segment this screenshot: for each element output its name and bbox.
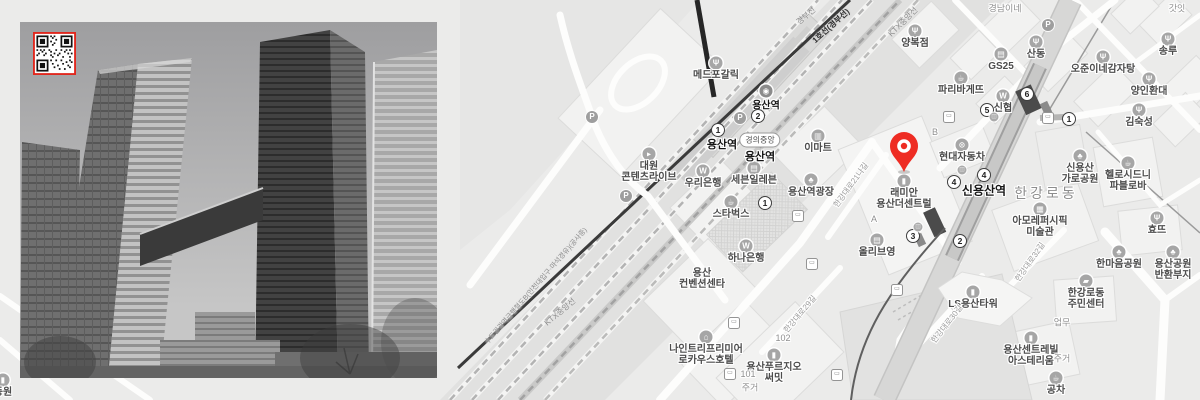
park-icon: ♣: [1167, 246, 1180, 259]
subway-exit-badge[interactable]: 2: [751, 109, 765, 123]
bank-icon: W: [697, 165, 710, 178]
store-icon: ▤: [995, 48, 1008, 61]
map-poi-label: 송루: [1159, 46, 1177, 57]
hotel-icon: ⌂: [700, 331, 713, 344]
map-poi-label-line: 공차: [1047, 385, 1065, 396]
car-icon: ⊙: [956, 139, 969, 152]
map-poi-label: 양인환대: [1131, 86, 1168, 97]
parking-icon: P: [734, 112, 746, 124]
map-poi-label: 산동: [1027, 49, 1045, 60]
map-poi-label: 용산컨벤션센타: [679, 268, 725, 290]
park-icon: ♣: [805, 174, 818, 187]
bank-icon: W: [997, 90, 1010, 103]
map-poi-label-line: 동원: [0, 387, 12, 398]
elevator-icon: ◫: [914, 223, 923, 232]
bus-stop-icon: ▭: [728, 317, 740, 329]
map-poi-label: 파리바게뜨: [938, 85, 984, 96]
map-poi-label: 효뜨: [1148, 225, 1166, 236]
restaurant-icon: Ψ: [1151, 212, 1164, 225]
station-name-label[interactable]: 신용산역: [962, 182, 1006, 199]
map-poi-label-line: 올리브영: [859, 247, 896, 258]
area-label: 갓잇: [1169, 2, 1186, 15]
area-label: 업무: [1054, 316, 1071, 329]
map-poi-label-line: 미술관: [1012, 227, 1067, 238]
map-poi-label: 신용산가로공원: [1062, 163, 1099, 185]
map-poi-label: 한마음공원: [1096, 259, 1142, 270]
subway-exit-badge[interactable]: 1: [1062, 112, 1076, 126]
station-name-label[interactable]: 용산역: [745, 148, 775, 164]
map-poi-label: 한강로동주민센터: [1068, 288, 1105, 310]
district-label: 한강로동: [1014, 183, 1078, 203]
map-poi-label: 대원콘텐츠라이브: [621, 161, 676, 183]
map-poi-label: 올리브영: [859, 247, 896, 258]
cafe-icon: ☕: [725, 196, 738, 209]
map-poi-label-line: 양복점: [901, 38, 929, 49]
map-poi-label: 현대자동차: [939, 152, 985, 163]
area-label: B: [932, 127, 938, 137]
subway-exit-badge[interactable]: 1: [711, 123, 725, 137]
map-poi-label-line: 한마음공원: [1096, 259, 1142, 270]
area-label: 경남이네: [988, 2, 1021, 15]
map-poi-label: 용산센트레빌아스테리움: [1003, 345, 1058, 367]
restaurant-icon: Ψ: [909, 25, 922, 38]
map-poi-label-line: 메드포갈릭: [693, 70, 739, 81]
subway-exit-badge[interactable]: 1: [758, 196, 772, 210]
parking-icon: P: [620, 190, 632, 202]
map-poi-label: 양복점: [901, 38, 929, 49]
map-poi-label-line: 아스테리움: [1003, 356, 1058, 367]
map-poi-label-line: 용산: [679, 268, 725, 279]
media-icon: ▸: [643, 148, 656, 161]
map-poi-label: 오준이네감자탕: [1071, 64, 1135, 75]
bus-stop-icon: ▭: [792, 210, 804, 222]
building-icon: ▮: [0, 374, 10, 387]
map-poi-label-line: 용산공원: [1155, 259, 1192, 270]
park-icon: ♣: [1113, 246, 1126, 259]
area-label: 101: [740, 369, 755, 379]
map-poi-label-line: 래미안: [876, 188, 931, 199]
restaurant-icon: Ψ: [1143, 73, 1156, 86]
apartment-icon: ▮: [768, 349, 781, 362]
store-icon: ▤: [871, 234, 884, 247]
map-poi-label: 우리은행: [685, 178, 722, 189]
map-pin[interactable]: [886, 126, 922, 176]
rail-line-label: 경부선: [794, 5, 818, 28]
map-poi-label-line: 한강로동: [1068, 288, 1105, 299]
map-poi-label-line: 현대자동차: [939, 152, 985, 163]
map-poi-label-line: 반환부지: [1155, 270, 1192, 281]
restaurant-icon: Ψ: [1097, 51, 1110, 64]
map-poi-label-line: 오준이네감자탕: [1071, 64, 1135, 75]
map-poi-label-line: 용산역광장: [788, 187, 834, 198]
map-poi-label: 동원: [0, 387, 12, 398]
gov-icon: ▰: [1080, 275, 1093, 288]
line-badge-gyeongui-jungang: 경의중앙: [739, 133, 780, 148]
map-poi-label-line: 로카우스호텔: [669, 355, 743, 366]
bank-icon: W: [740, 240, 753, 253]
bus-stop-icon: ▭: [943, 111, 955, 123]
subway-exit-badge[interactable]: 4: [947, 175, 961, 189]
map-poi-label-line: 용산센트레빌: [1003, 345, 1058, 356]
map-poi-label-line: 파리바게뜨: [938, 85, 984, 96]
map-poi-label-line: 하나은행: [728, 253, 765, 264]
building-icon: ▮: [967, 286, 980, 299]
subway-exit-badge[interactable]: 2: [953, 234, 967, 248]
map-poi-label-line: 용산더센트럴: [876, 199, 931, 210]
parking-icon: P: [1042, 19, 1054, 31]
restaurant-icon: Ψ: [1162, 33, 1175, 46]
street-name-label: 한강대로30길: [929, 303, 966, 346]
cafe-icon: ☕: [1050, 372, 1063, 385]
bakery-icon: ☕: [955, 72, 968, 85]
museum-icon: ▦: [1034, 203, 1047, 216]
map-poi-label: 아모레퍼시픽미술관: [1012, 216, 1067, 238]
map-poi-label-line: 헬로시드니: [1105, 170, 1151, 181]
map-poi-label: 메드포갈릭: [693, 70, 739, 81]
park-icon: ♣: [1074, 150, 1087, 163]
map-poi-label-line: 스타벅스: [713, 209, 750, 220]
map-poi-label: GS25: [988, 61, 1014, 72]
rail-line-label: 수도권광역급행철도B(인천대입구·마석경유)(공사중): [483, 226, 590, 347]
restaurant-icon: Ψ: [1030, 36, 1043, 49]
elevator-icon: ◫: [958, 166, 967, 175]
elevator-icon: ◫: [990, 113, 999, 122]
apartment-icon: ▮: [898, 175, 911, 188]
qr-code: [33, 32, 76, 75]
street-name-label: 한강대로32길: [1012, 240, 1047, 284]
bus-stop-icon: ▭: [831, 369, 843, 381]
map-poi-label-line: 신용산: [1062, 163, 1099, 174]
map-poi-label: 공차: [1047, 385, 1065, 396]
map-poi-label: 래미안용산더센트럴: [876, 188, 931, 210]
map-poi-label-line: 대원: [621, 161, 676, 172]
cafe-icon: ☕: [1122, 157, 1135, 170]
street-name-label: 한강대로29길: [781, 293, 819, 335]
map-poi-label: 용산공원반환부지: [1155, 259, 1192, 281]
bus-stop-icon: ▭: [724, 368, 736, 380]
station-name-label[interactable]: 용산역: [707, 136, 737, 152]
area-label: A: [871, 214, 877, 224]
screenshot-root: Ψ메드포갈릭Ψ양복점▥이마트▸대원콘텐츠라이브W우리은행▤세븐일레븐♣용산역광장…: [0, 0, 1200, 400]
map-poi-label-line: 주민센터: [1068, 299, 1105, 310]
map-poi-label-line: 나인트리프리미어: [669, 344, 743, 355]
parking-icon: P: [586, 111, 598, 123]
mart-icon: ▥: [812, 130, 825, 143]
restaurant-icon: Ψ: [1133, 104, 1146, 117]
map-poi-label-line: GS25: [988, 61, 1014, 72]
apartment-icon: ▮: [1025, 332, 1038, 345]
map-poi-label-line: 아모레퍼시픽: [1012, 216, 1067, 227]
map-poi-label: 김숙성: [1125, 117, 1153, 128]
map-poi-label-line: 효뜨: [1148, 225, 1166, 236]
map-poi-label-line: 산동: [1027, 49, 1045, 60]
bus-stop-icon: ▭: [891, 284, 903, 296]
bus-stop-icon: ▭: [1042, 112, 1054, 124]
map-poi-label: 하나은행: [728, 253, 765, 264]
map-poi-label-line: 세븐일레븐: [731, 175, 777, 186]
street-name-label: 한강대로21나길: [831, 160, 871, 209]
map-poi-label-line: 파블로바: [1105, 181, 1151, 192]
map-poi-label-line: 송루: [1159, 46, 1177, 57]
map-poi-label-line: 이마트: [804, 143, 832, 154]
map-poi-label-line: 우리은행: [685, 178, 722, 189]
subway-exit-badge[interactable]: 6: [1020, 87, 1034, 101]
bus-stop-icon: ▭: [806, 258, 818, 270]
map-poi-label: 이마트: [804, 143, 832, 154]
map-poi-label-line: 김숙성: [1125, 117, 1153, 128]
map-poi-label-line: 양인환대: [1131, 86, 1168, 97]
map-poi-label: 용산역광장: [788, 187, 834, 198]
building-photo: [20, 22, 437, 378]
map-poi-label-line: 콘텐츠라이브: [621, 172, 676, 183]
restaurant-icon: Ψ: [710, 57, 723, 70]
map-poi-label-line: 컨벤션센타: [679, 279, 725, 290]
map-poi-label: 나인트리프리미어로카우스호텔: [669, 344, 743, 366]
map-poi-label: 스타벅스: [713, 209, 750, 220]
map-poi-label: 헬로시드니파블로바: [1105, 170, 1151, 192]
area-label: 주거: [742, 381, 759, 394]
map-poi-label: 세븐일레븐: [731, 175, 777, 186]
rail-line-label: KTX중앙선: [542, 296, 578, 329]
area-label: 주거: [1054, 352, 1071, 365]
subway-exit-badge[interactable]: 4: [977, 168, 991, 182]
towers-illustration: [20, 22, 437, 378]
